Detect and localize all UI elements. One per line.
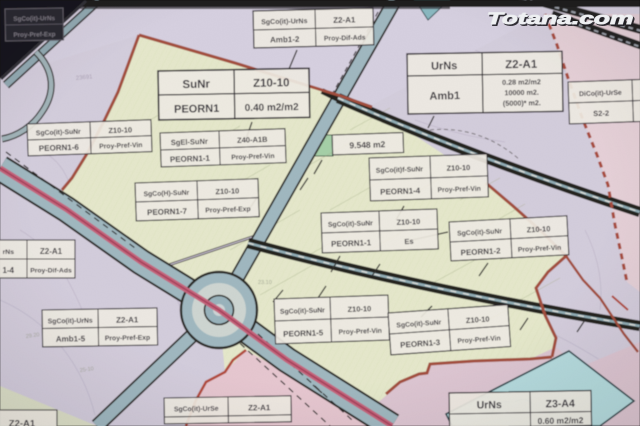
svg-text:Totana.com: Totana.com [487,8,634,27]
